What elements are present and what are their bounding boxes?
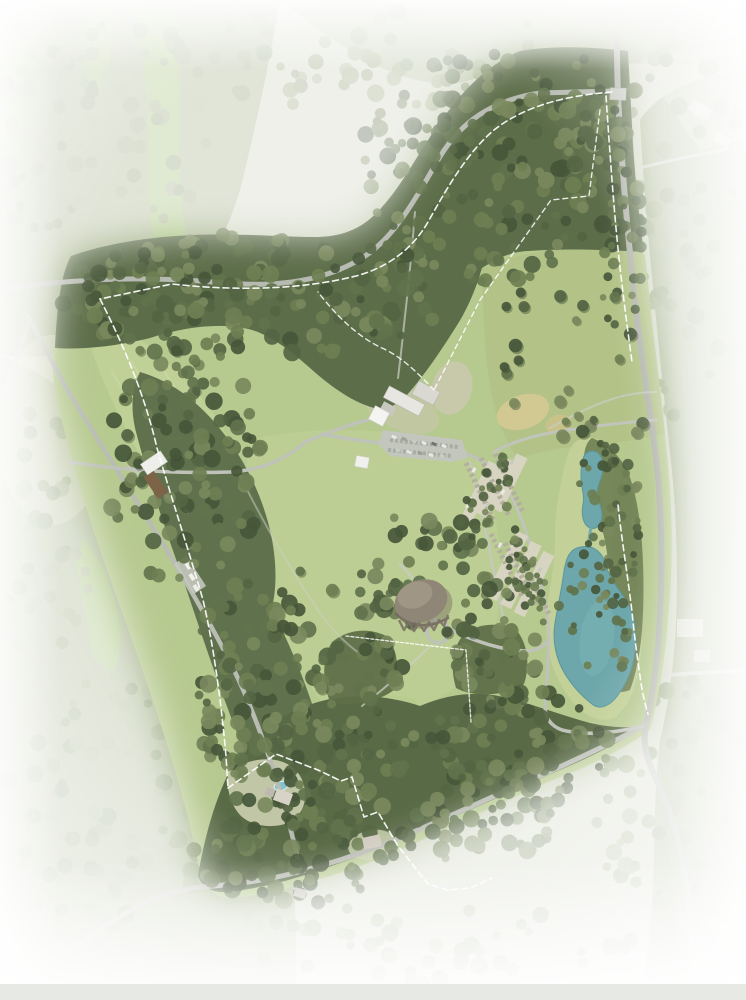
bottom-margin-bar: [0, 984, 746, 1000]
fade-overlays: [0, 0, 746, 1000]
left-fade-overlay: [0, 0, 60, 1000]
map-figure: [0, 0, 746, 1000]
bottom-fade-overlay: [0, 860, 746, 1000]
aerial-site-map: [0, 0, 746, 1000]
top-fade-overlay: [0, 0, 746, 70]
right-fade-overlay: [666, 0, 746, 1000]
edge-fade-overlay: [0, 0, 746, 1000]
